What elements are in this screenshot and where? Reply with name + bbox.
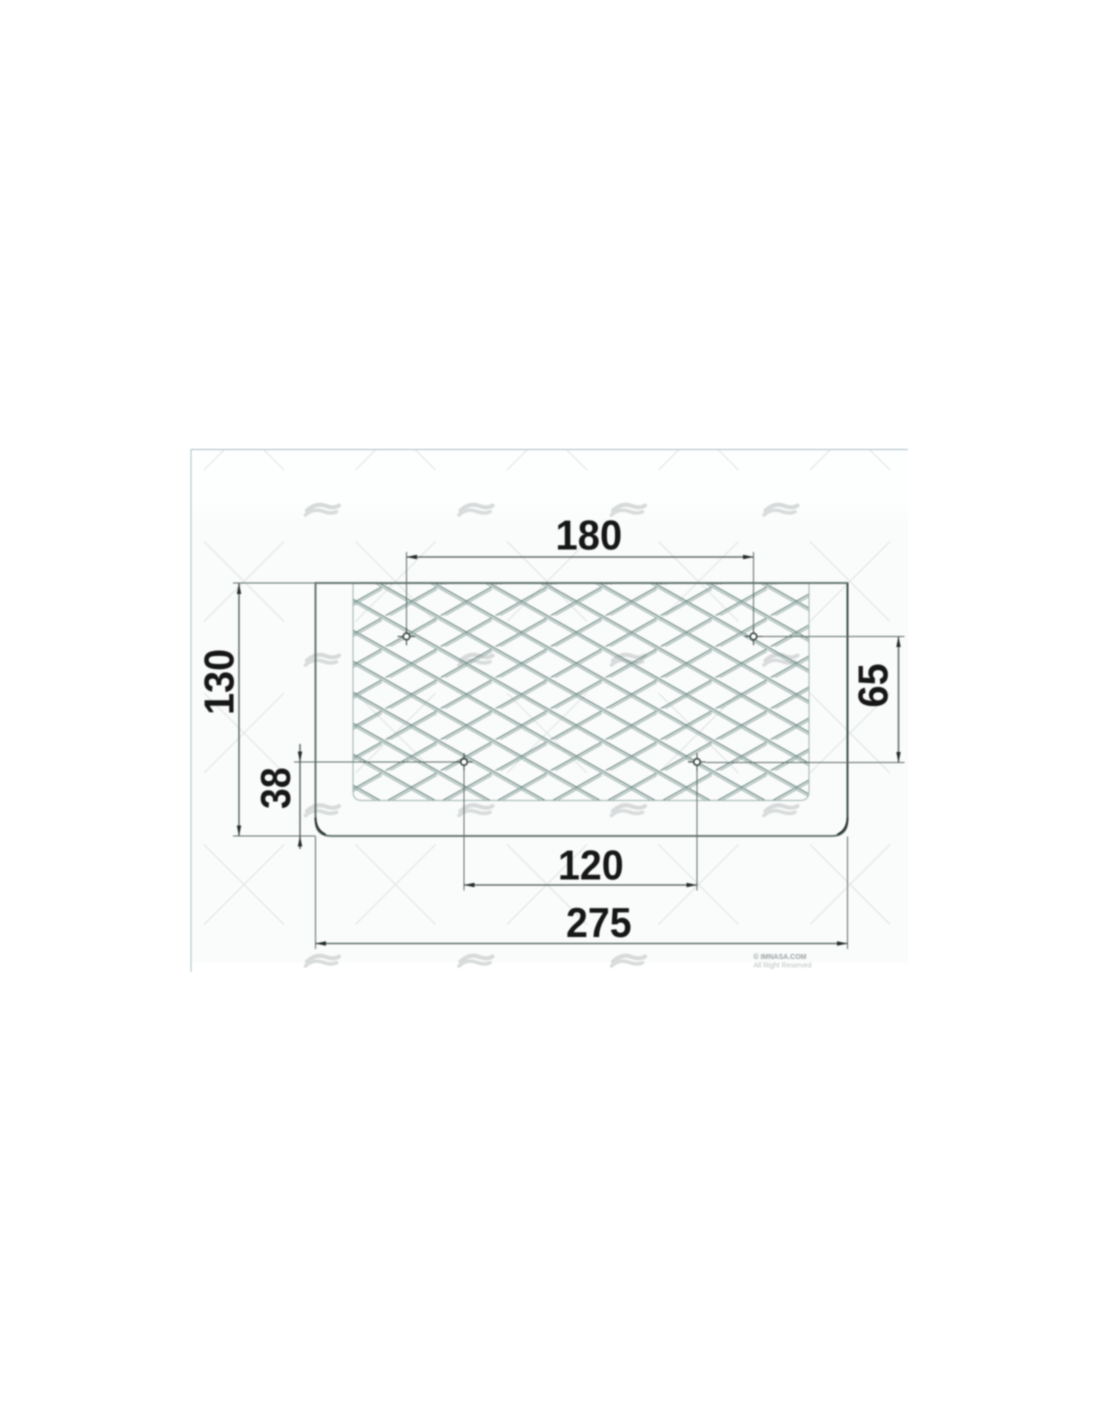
svg-text:All Right Reserved: All Right Reserved bbox=[754, 962, 812, 969]
svg-text:© IMNASA.COM: © IMNASA.COM bbox=[754, 953, 807, 961]
